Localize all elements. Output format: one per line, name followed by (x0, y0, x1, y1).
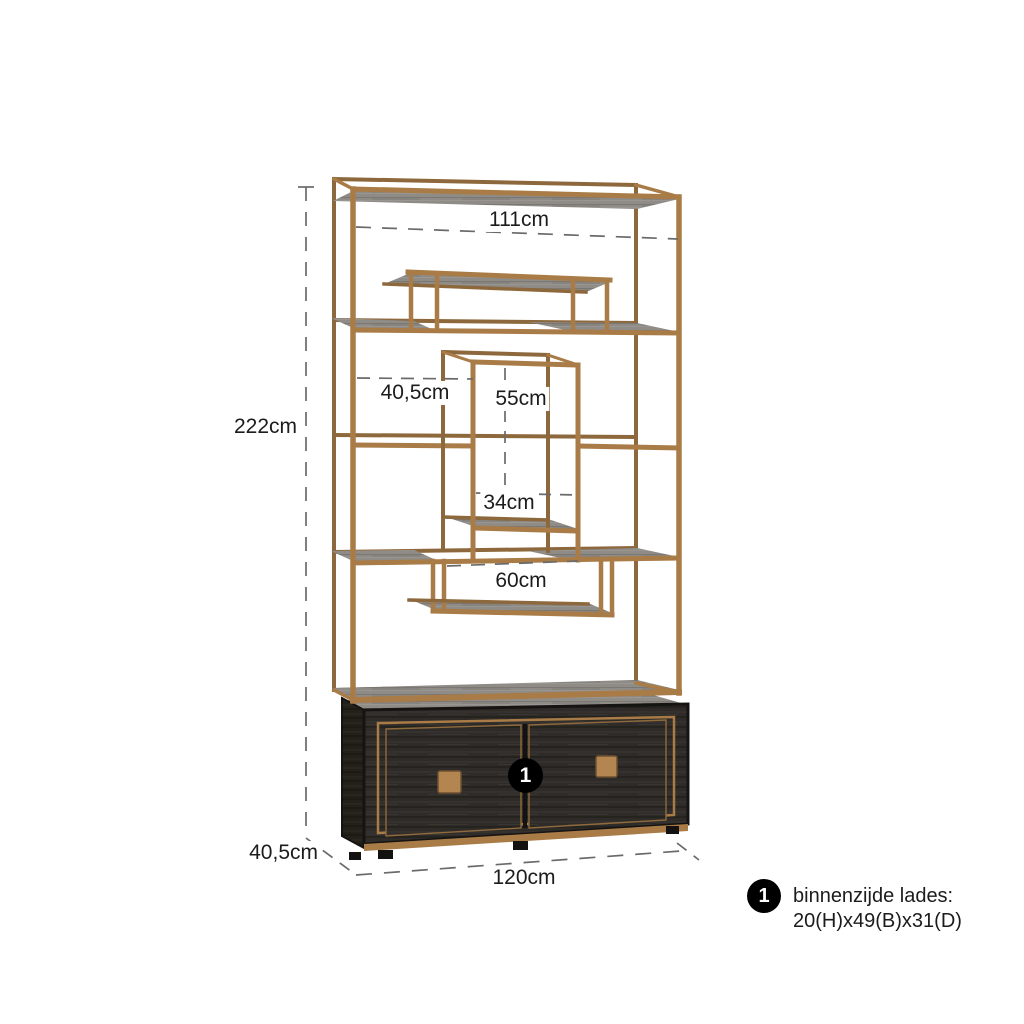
note-text-line1: binnenzijde lades: (793, 884, 962, 909)
dimension-label-base-depth: 40,5cm (246, 841, 321, 865)
dimension-label-height: 222cm (231, 415, 300, 439)
dimension-label-compartment-depth: 40,5cm (378, 381, 453, 405)
dimension-label-base-width: 120cm (489, 866, 558, 890)
dimension-label-box-width: 34cm (480, 491, 537, 515)
dimension-tick-base-right (677, 843, 699, 860)
dimension-label-top-width: 111cm (486, 208, 552, 232)
cabinet-foot (666, 826, 679, 834)
dimension-line-compartment-depth (357, 378, 473, 379)
cabinet-foot (378, 850, 393, 859)
cabinet-foot (349, 852, 361, 860)
drawer-knob-right (596, 756, 617, 777)
note-text: binnenzijde lades: 20(H)x49(B)x31(D) (793, 884, 962, 934)
note-marker: 1 (747, 879, 781, 913)
product-dimension-diagram: 222cm 111cm 40,5cm 55cm 34cm 60cm 40,5cm… (0, 0, 1024, 1024)
cabinet-foot (513, 841, 528, 850)
drawer-note-badge: 1 (508, 758, 543, 793)
etagere-front-frame (334, 179, 679, 701)
dimension-label-bridge-width: 60cm (492, 569, 549, 593)
note-text-line2: 20(H)x49(B)x31(D) (793, 909, 962, 934)
cabinet-side-panel (342, 698, 364, 848)
drawer-knob-left (438, 771, 461, 793)
display-box (443, 352, 578, 561)
dimension-label-box-height: 55cm (492, 387, 549, 411)
